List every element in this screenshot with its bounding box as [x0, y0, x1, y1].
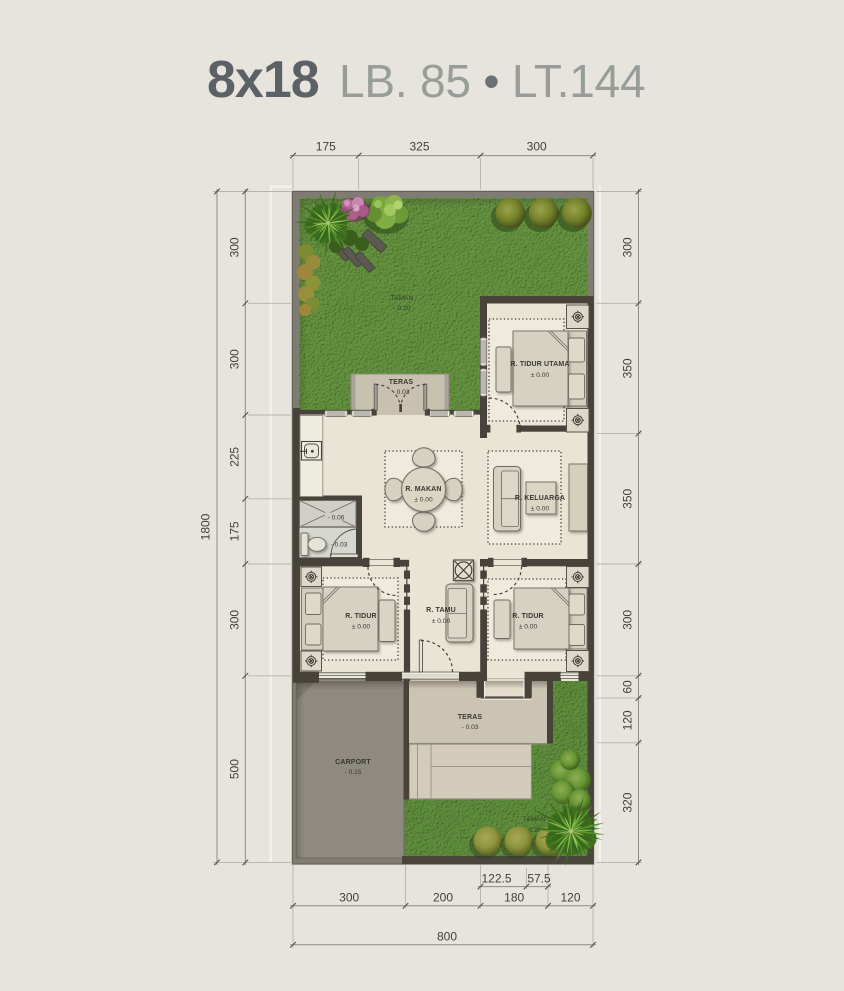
svg-text:300: 300: [621, 610, 635, 630]
svg-text:8x18: 8x18: [207, 51, 319, 109]
svg-text:R. MAKAN: R. MAKAN: [405, 486, 441, 493]
svg-text:TAMAN: TAMAN: [391, 295, 414, 302]
svg-text:- 0.06: - 0.06: [328, 515, 345, 522]
svg-text:TERAS: TERAS: [389, 379, 414, 386]
svg-text:CARPORT: CARPORT: [335, 759, 371, 766]
svg-text:120: 120: [560, 890, 580, 904]
svg-text:- 0.03: - 0.03: [462, 724, 479, 731]
svg-text:± 0.00: ± 0.00: [352, 624, 371, 631]
svg-text:57.5: 57.5: [527, 872, 551, 886]
svg-text:R. TAMU: R. TAMU: [426, 607, 456, 614]
svg-text:200: 200: [433, 890, 453, 904]
svg-text:300: 300: [527, 140, 547, 154]
svg-text:± 0.00: ± 0.00: [531, 372, 550, 379]
svg-text:R. TIDUR UTAMA: R. TIDUR UTAMA: [510, 361, 569, 368]
svg-text:± 0.00: ± 0.00: [432, 618, 451, 625]
svg-text:± 0.00: ± 0.00: [531, 506, 550, 513]
svg-text:300: 300: [339, 890, 359, 904]
svg-text:175: 175: [228, 521, 242, 541]
svg-text:TERAS: TERAS: [458, 714, 483, 721]
svg-text:LB. 85 • LT.144: LB. 85 • LT.144: [339, 55, 645, 107]
svg-text:300: 300: [228, 349, 242, 369]
svg-text:60: 60: [621, 680, 635, 694]
svg-text:1800: 1800: [199, 513, 213, 540]
svg-text:- 0.15: - 0.15: [345, 769, 362, 776]
svg-text:320: 320: [621, 792, 635, 812]
svg-text:800: 800: [437, 930, 457, 944]
svg-text:175: 175: [316, 140, 336, 154]
svg-text:± 0.00: ± 0.00: [414, 497, 433, 504]
svg-text:300: 300: [228, 237, 242, 257]
svg-text:180: 180: [504, 890, 524, 904]
svg-text:TAMAN: TAMAN: [523, 816, 546, 823]
svg-text:R. TIDUR: R. TIDUR: [512, 613, 544, 620]
svg-text:R. TIDUR: R. TIDUR: [345, 613, 377, 620]
svg-text:350: 350: [621, 358, 635, 378]
svg-text:325: 325: [409, 140, 429, 154]
svg-text:350: 350: [621, 488, 635, 508]
svg-text:R. KELUARGA: R. KELUARGA: [515, 495, 565, 502]
svg-text:± 0.00: ± 0.00: [519, 624, 538, 631]
svg-text:300: 300: [228, 610, 242, 630]
svg-text:122.5: 122.5: [481, 872, 511, 886]
svg-text:300: 300: [621, 237, 635, 257]
svg-text:- 0.20: - 0.20: [394, 305, 411, 312]
svg-text:120: 120: [621, 710, 635, 730]
svg-text:225: 225: [228, 447, 242, 467]
svg-text:500: 500: [228, 759, 242, 779]
